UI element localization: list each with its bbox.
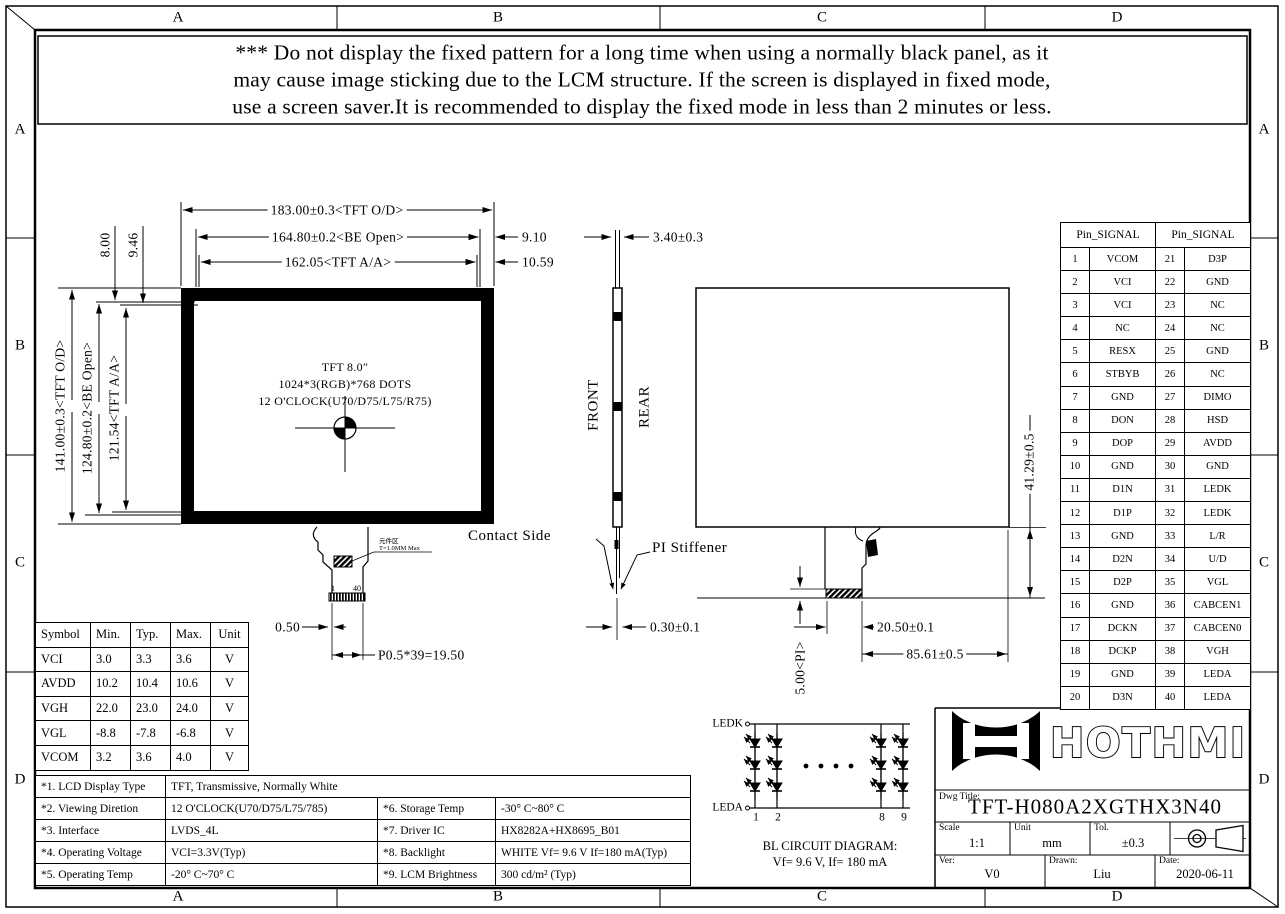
electrical-min: 3.2 [91, 745, 131, 770]
pin-number: 33 [1156, 525, 1185, 548]
bl-col-2: 2 [775, 812, 781, 824]
spec-value: WHITE Vf= 9.6 V If=180 mA(Typ) [496, 842, 691, 864]
fpc-pin1-label: 1 [331, 585, 335, 593]
dim-right-be-offset: 9.10 [522, 230, 547, 244]
spec-label: *7. Driver IC [378, 820, 496, 842]
pin-signal: DCKP [1090, 640, 1156, 663]
scale-value: 1:1 [969, 837, 985, 850]
pin-signal: D3N [1090, 686, 1156, 709]
dim-fpc-pitch: P0.5*39=19.50 [378, 648, 465, 662]
electrical-max: 3.6 [171, 647, 211, 672]
dim-top-od: 183.00±0.3<TFT O/D> [268, 203, 407, 217]
bl-col-9: 9 [901, 812, 907, 824]
electrical-symbol: VGL [36, 721, 91, 746]
spec-label: *9. LCM Brightness [378, 864, 496, 886]
pin-table-row: 5 RESX 25 GND [1061, 340, 1251, 363]
electrical-row: VCOM 3.2 3.6 4.0 V [36, 745, 249, 770]
pin-signal: U/D [1185, 548, 1251, 571]
pin-number: 25 [1156, 340, 1185, 363]
dim-fpc-length: 41.29±0.5 [1022, 430, 1036, 493]
pin-signal: NC [1185, 363, 1251, 386]
pin-number: 18 [1061, 640, 1090, 663]
electrical-max: 4.0 [171, 745, 211, 770]
spec-label: *3. Interface [36, 820, 166, 842]
spec-value: 12 O'CLOCK(U70/D75/L75/785) [166, 798, 378, 820]
dim-left-offset-aa: 9.46 [126, 233, 140, 258]
pin-table-row: 18 DCKP 38 VGH [1061, 640, 1251, 663]
pin-table-row: 16 GND 36 CABCEN1 [1061, 594, 1251, 617]
pin-number: 17 [1061, 617, 1090, 640]
pin-table-row: 12 D1P 32 LEDK [1061, 502, 1251, 525]
panel-resolution-label: 1024*3(RGB)*768 DOTS [278, 378, 411, 390]
pin-signal: VGH [1185, 640, 1251, 663]
warning-line-2: may cause image sticking due to the LCM … [233, 69, 1050, 91]
pin-signal: GND [1185, 455, 1251, 478]
unit-value: mm [1042, 837, 1061, 850]
pin-signal: DOP [1090, 432, 1156, 455]
bl-caption-2: Vf= 9.6 V, If= 180 mA [773, 856, 888, 869]
zone-top-d: D [1112, 11, 1123, 26]
pin-number: 32 [1156, 502, 1185, 525]
pin-number: 39 [1156, 663, 1185, 686]
zone-left-b: B [15, 339, 25, 354]
pin-number: 11 [1061, 478, 1090, 501]
bl-col-1: 1 [753, 812, 759, 824]
dim-left-offset-be: 8.00 [98, 233, 112, 258]
zone-right-b: B [1259, 339, 1269, 354]
pin-number: 30 [1156, 455, 1185, 478]
tol-label: Tol. [1094, 824, 1109, 834]
dim-stiffener-width: 20.50±0.1 [877, 620, 934, 634]
dim-fpc-width: 85.61±0.5 [903, 647, 966, 661]
pin-signal: NC [1090, 317, 1156, 340]
pin-table-row: 11 D1N 31 LEDK [1061, 478, 1251, 501]
bl-circuit [744, 722, 910, 810]
drawn-value: Liu [1093, 868, 1110, 881]
electrical-typ: 23.0 [131, 696, 171, 721]
fpc-pin40-label: 40 [353, 585, 361, 593]
pin-signal: VCI [1090, 271, 1156, 294]
electrical-header-cell: Typ. [131, 623, 171, 648]
pin-number: 1 [1061, 248, 1090, 271]
side-view [584, 230, 650, 640]
zone-left-c: C [15, 556, 25, 571]
pin-number: 2 [1061, 271, 1090, 294]
pin-number: 13 [1061, 525, 1090, 548]
warning-line-1: *** Do not display the fixed pattern for… [235, 42, 1048, 64]
bl-caption-1: BL CIRCUIT DIAGRAM: [763, 840, 898, 853]
electrical-max: -6.8 [171, 721, 211, 746]
pin-number: 28 [1156, 409, 1185, 432]
pin-signal: AVDD [1185, 432, 1251, 455]
spec-value: VCI=3.3V(Typ) [166, 842, 378, 864]
dim-left-be: 124.80±0.2<BE Open> [80, 342, 94, 474]
pin-number: 38 [1156, 640, 1185, 663]
ledk-label: LEDK [712, 718, 743, 730]
spec-label: *8. Backlight [378, 842, 496, 864]
pin-table-row: 3 VCI 23 NC [1061, 294, 1251, 317]
pin-number: 8 [1061, 409, 1090, 432]
pin-signal: LEDA [1185, 686, 1251, 709]
pin-table-row: 2 VCI 22 GND [1061, 271, 1251, 294]
electrical-unit: V [211, 672, 249, 697]
zone-right-c: C [1259, 556, 1269, 571]
electrical-symbol: VCOM [36, 745, 91, 770]
spec-row: *2. Viewing Diretion 12 O'CLOCK(U70/D75/… [36, 798, 691, 820]
spec-value: TFT, Transmissive, Normally White [166, 776, 691, 798]
pin-signal: VCI [1090, 294, 1156, 317]
pin-signal: DIMO [1185, 386, 1251, 409]
electrical-max: 24.0 [171, 696, 211, 721]
pin-number: 14 [1061, 548, 1090, 571]
spec-label: *2. Viewing Diretion [36, 798, 166, 820]
pin-signal: DON [1090, 409, 1156, 432]
zone-bottom-b: B [493, 890, 503, 905]
spec-value: HX8282A+HX8695_B01 [496, 820, 691, 842]
pin-table-row: 4 NC 24 NC [1061, 317, 1251, 340]
electrical-unit: V [211, 647, 249, 672]
pin-table-row: 13 GND 33 L/R [1061, 525, 1251, 548]
zone-bottom-a: A [173, 890, 184, 905]
contact-side-label: Contact Side [468, 529, 551, 544]
spec-value: -30° C~80° C [496, 798, 691, 820]
drawing-sheet: HOTHMI A B C D A B C D A B C D A B C D *… [0, 0, 1285, 914]
pin-table-row: 10 GND 30 GND [1061, 455, 1251, 478]
pin-number: 6 [1061, 363, 1090, 386]
electrical-header-cell: Symbol [36, 623, 91, 648]
pin-signal: GND [1090, 663, 1156, 686]
pin-table-row: 19 GND 39 LEDA [1061, 663, 1251, 686]
pin-table-row: 8 DON 28 HSD [1061, 409, 1251, 432]
pin-number: 10 [1061, 455, 1090, 478]
zone-bottom-c: C [817, 890, 827, 905]
pin-number: 24 [1156, 317, 1185, 340]
spec-value: 300 cd/m² (Typ) [496, 864, 691, 886]
pin-number: 15 [1061, 571, 1090, 594]
zone-right-d: D [1259, 773, 1270, 788]
pin-number: 37 [1156, 617, 1185, 640]
electrical-unit: V [211, 745, 249, 770]
panel-clock-label: 12 O'CLOCK(U70/D75/L75/R75) [258, 395, 431, 407]
leda-label: LEDA [712, 802, 743, 814]
drawn-label: Drawn: [1049, 857, 1078, 867]
pin-number: 21 [1156, 248, 1185, 271]
electrical-max: 10.6 [171, 672, 211, 697]
pin-table-header-right: Pin_SIGNAL [1156, 223, 1251, 248]
pin-signal: GND [1090, 525, 1156, 548]
pin-signal: D2P [1090, 571, 1156, 594]
pin-table-header-left: Pin_SIGNAL [1061, 223, 1156, 248]
pin-number: 16 [1061, 594, 1090, 617]
ver-label: Ver: [939, 857, 955, 867]
pin-table-row: 20 D3N 40 LEDA [1061, 686, 1251, 709]
zone-left-d: D [15, 773, 26, 788]
rear-view [696, 288, 1046, 662]
pi-stiffener-label: PI Stiffener [652, 541, 727, 556]
spec-row: *3. Interface LVDS_4L *7. Driver IC HX82… [36, 820, 691, 842]
dim-top-be: 164.80±0.2<BE Open> [269, 230, 407, 244]
hothmi-logo: HOTHMI [952, 711, 1247, 771]
spec-row: *1. LCD Display Type TFT, Transmissive, … [36, 776, 691, 798]
pin-signal: LEDK [1185, 478, 1251, 501]
zone-right-a: A [1259, 123, 1270, 138]
electrical-symbol: VCI [36, 647, 91, 672]
pin-table-row: 1 VCOM 21 D3P [1061, 248, 1251, 271]
pin-number: 29 [1156, 432, 1185, 455]
pin-table-row: 14 D2N 34 U/D [1061, 548, 1251, 571]
pin-number: 9 [1061, 432, 1090, 455]
electrical-header-cell: Max. [171, 623, 211, 648]
date-label: Date: [1159, 857, 1180, 867]
dim-left-aa: 121.54<TFT A/A> [107, 355, 121, 462]
pin-number: 20 [1061, 686, 1090, 709]
spec-label: *4. Operating Voltage [36, 842, 166, 864]
pin-signal: GND [1185, 271, 1251, 294]
pin-table-row: 17 DCKN 37 CABCEN0 [1061, 617, 1251, 640]
electrical-typ: 3.6 [131, 745, 171, 770]
electrical-typ: 10.4 [131, 672, 171, 697]
pin-number: 40 [1156, 686, 1185, 709]
pin-signal: D3P [1185, 248, 1251, 271]
spec-row: *4. Operating Voltage VCI=3.3V(Typ) *8. … [36, 842, 691, 864]
ver-value: V0 [984, 868, 999, 881]
pin-number: 34 [1156, 548, 1185, 571]
pin-table-row: 7 GND 27 DIMO [1061, 386, 1251, 409]
dim-fpc-thickness: 0.30±0.1 [650, 620, 700, 634]
pin-signal: D1P [1090, 502, 1156, 525]
electrical-table: SymbolMin.Typ.Max.Unit VCI 3.0 3.3 3.6 V… [35, 622, 249, 771]
dim-left-od: 141.00±0.3<TFT O/D> [53, 340, 67, 473]
pin-signal: RESX [1090, 340, 1156, 363]
electrical-unit: V [211, 721, 249, 746]
warning-line-3: use a screen saver.It is recommended to … [232, 96, 1051, 118]
pin-number: 12 [1061, 502, 1090, 525]
pin-signal: D2N [1090, 548, 1156, 571]
pin-signal: GND [1090, 455, 1156, 478]
pin-number: 31 [1156, 478, 1185, 501]
zone-top-b: B [493, 11, 503, 26]
pin-number: 3 [1061, 294, 1090, 317]
pin-number: 23 [1156, 294, 1185, 317]
electrical-header-cell: Unit [211, 623, 249, 648]
zone-top-a: A [173, 11, 184, 26]
pin-table-row: 15 D2P 35 VGL [1061, 571, 1251, 594]
pin-signal: NC [1185, 294, 1251, 317]
pin-signal: GND [1090, 386, 1156, 409]
pin-signal: CABCEN1 [1185, 594, 1251, 617]
electrical-unit: V [211, 696, 249, 721]
pin-number: 22 [1156, 271, 1185, 294]
spec-table: *1. LCD Display Type TFT, Transmissive, … [35, 775, 691, 886]
spec-row: *5. Operating Temp -20° C~70° C *9. LCM … [36, 864, 691, 886]
spec-label: *6. Storage Temp [378, 798, 496, 820]
component-note-2: T=1.0MM Max [379, 546, 420, 553]
dim-fpc-edge: 0.50 [275, 620, 300, 634]
pin-number: 26 [1156, 363, 1185, 386]
panel-size-label: TFT 8.0″ [322, 361, 369, 373]
spec-value: -20° C~70° C [166, 864, 378, 886]
dim-top-aa: 162.05<TFT A/A> [282, 255, 395, 269]
spec-label: *1. LCD Display Type [36, 776, 166, 798]
tol-value: ±0.3 [1122, 837, 1145, 850]
electrical-symbol: VGH [36, 696, 91, 721]
pin-table-row: 9 DOP 29 AVDD [1061, 432, 1251, 455]
pin-signal: VCOM [1090, 248, 1156, 271]
electrical-min: -8.8 [91, 721, 131, 746]
pin-signal: STBYB [1090, 363, 1156, 386]
zone-left-a: A [15, 123, 26, 138]
bl-col-8: 8 [879, 812, 885, 824]
logo-wordmark: HOTHMI [1050, 719, 1247, 767]
electrical-row: VGH 22.0 23.0 24.0 V [36, 696, 249, 721]
pin-signal: HSD [1185, 409, 1251, 432]
dim-pi-height: 5.00<PI> [793, 638, 807, 697]
zone-bottom-d: D [1112, 890, 1123, 905]
pin-signal: DCKN [1090, 617, 1156, 640]
electrical-row: AVDD 10.2 10.4 10.6 V [36, 672, 249, 697]
pin-signal: LEDA [1185, 663, 1251, 686]
pin-signal: NC [1185, 317, 1251, 340]
pin-signal: GND [1090, 594, 1156, 617]
dim-thickness: 3.40±0.3 [653, 230, 703, 244]
pin-number: 19 [1061, 663, 1090, 686]
pin-number: 7 [1061, 386, 1090, 409]
electrical-row: VCI 3.0 3.3 3.6 V [36, 647, 249, 672]
electrical-typ: 3.3 [131, 647, 171, 672]
electrical-min: 22.0 [91, 696, 131, 721]
electrical-min: 10.2 [91, 672, 131, 697]
rear-label: REAR [638, 386, 653, 428]
zone-top-c: C [817, 11, 827, 26]
pin-number: 4 [1061, 317, 1090, 340]
electrical-min: 3.0 [91, 647, 131, 672]
pin-signal: L/R [1185, 525, 1251, 548]
pin-signal: D1N [1090, 478, 1156, 501]
unit-label: Unit [1014, 824, 1031, 834]
dwg-title-value: TFT-H080A2XGTHX3N40 [968, 797, 1222, 818]
pin-signal: VGL [1185, 571, 1251, 594]
electrical-row: VGL -8.8 -7.8 -6.8 V [36, 721, 249, 746]
pin-number: 35 [1156, 571, 1185, 594]
spec-value: LVDS_4L [166, 820, 378, 842]
front-label: FRONT [587, 379, 602, 431]
electrical-symbol: AVDD [36, 672, 91, 697]
pin-number: 5 [1061, 340, 1090, 363]
pin-signal: GND [1185, 340, 1251, 363]
date-value: 2020-06-11 [1176, 868, 1234, 881]
electrical-typ: -7.8 [131, 721, 171, 746]
dim-right-aa-offset: 10.59 [522, 255, 554, 269]
projection-symbol-icon [1174, 826, 1246, 852]
electrical-header-cell: Min. [91, 623, 131, 648]
pin-signal: LEDK [1185, 502, 1251, 525]
pin-number: 27 [1156, 386, 1185, 409]
pin-signal-table: Pin_SIGNAL Pin_SIGNAL 1 VCOM 21 D3P 2 VC… [1060, 222, 1251, 710]
spec-label: *5. Operating Temp [36, 864, 166, 886]
pin-signal: CABCEN0 [1185, 617, 1251, 640]
pin-number: 36 [1156, 594, 1185, 617]
pin-table-row: 6 STBYB 26 NC [1061, 363, 1251, 386]
scale-label: Scale [939, 824, 960, 834]
